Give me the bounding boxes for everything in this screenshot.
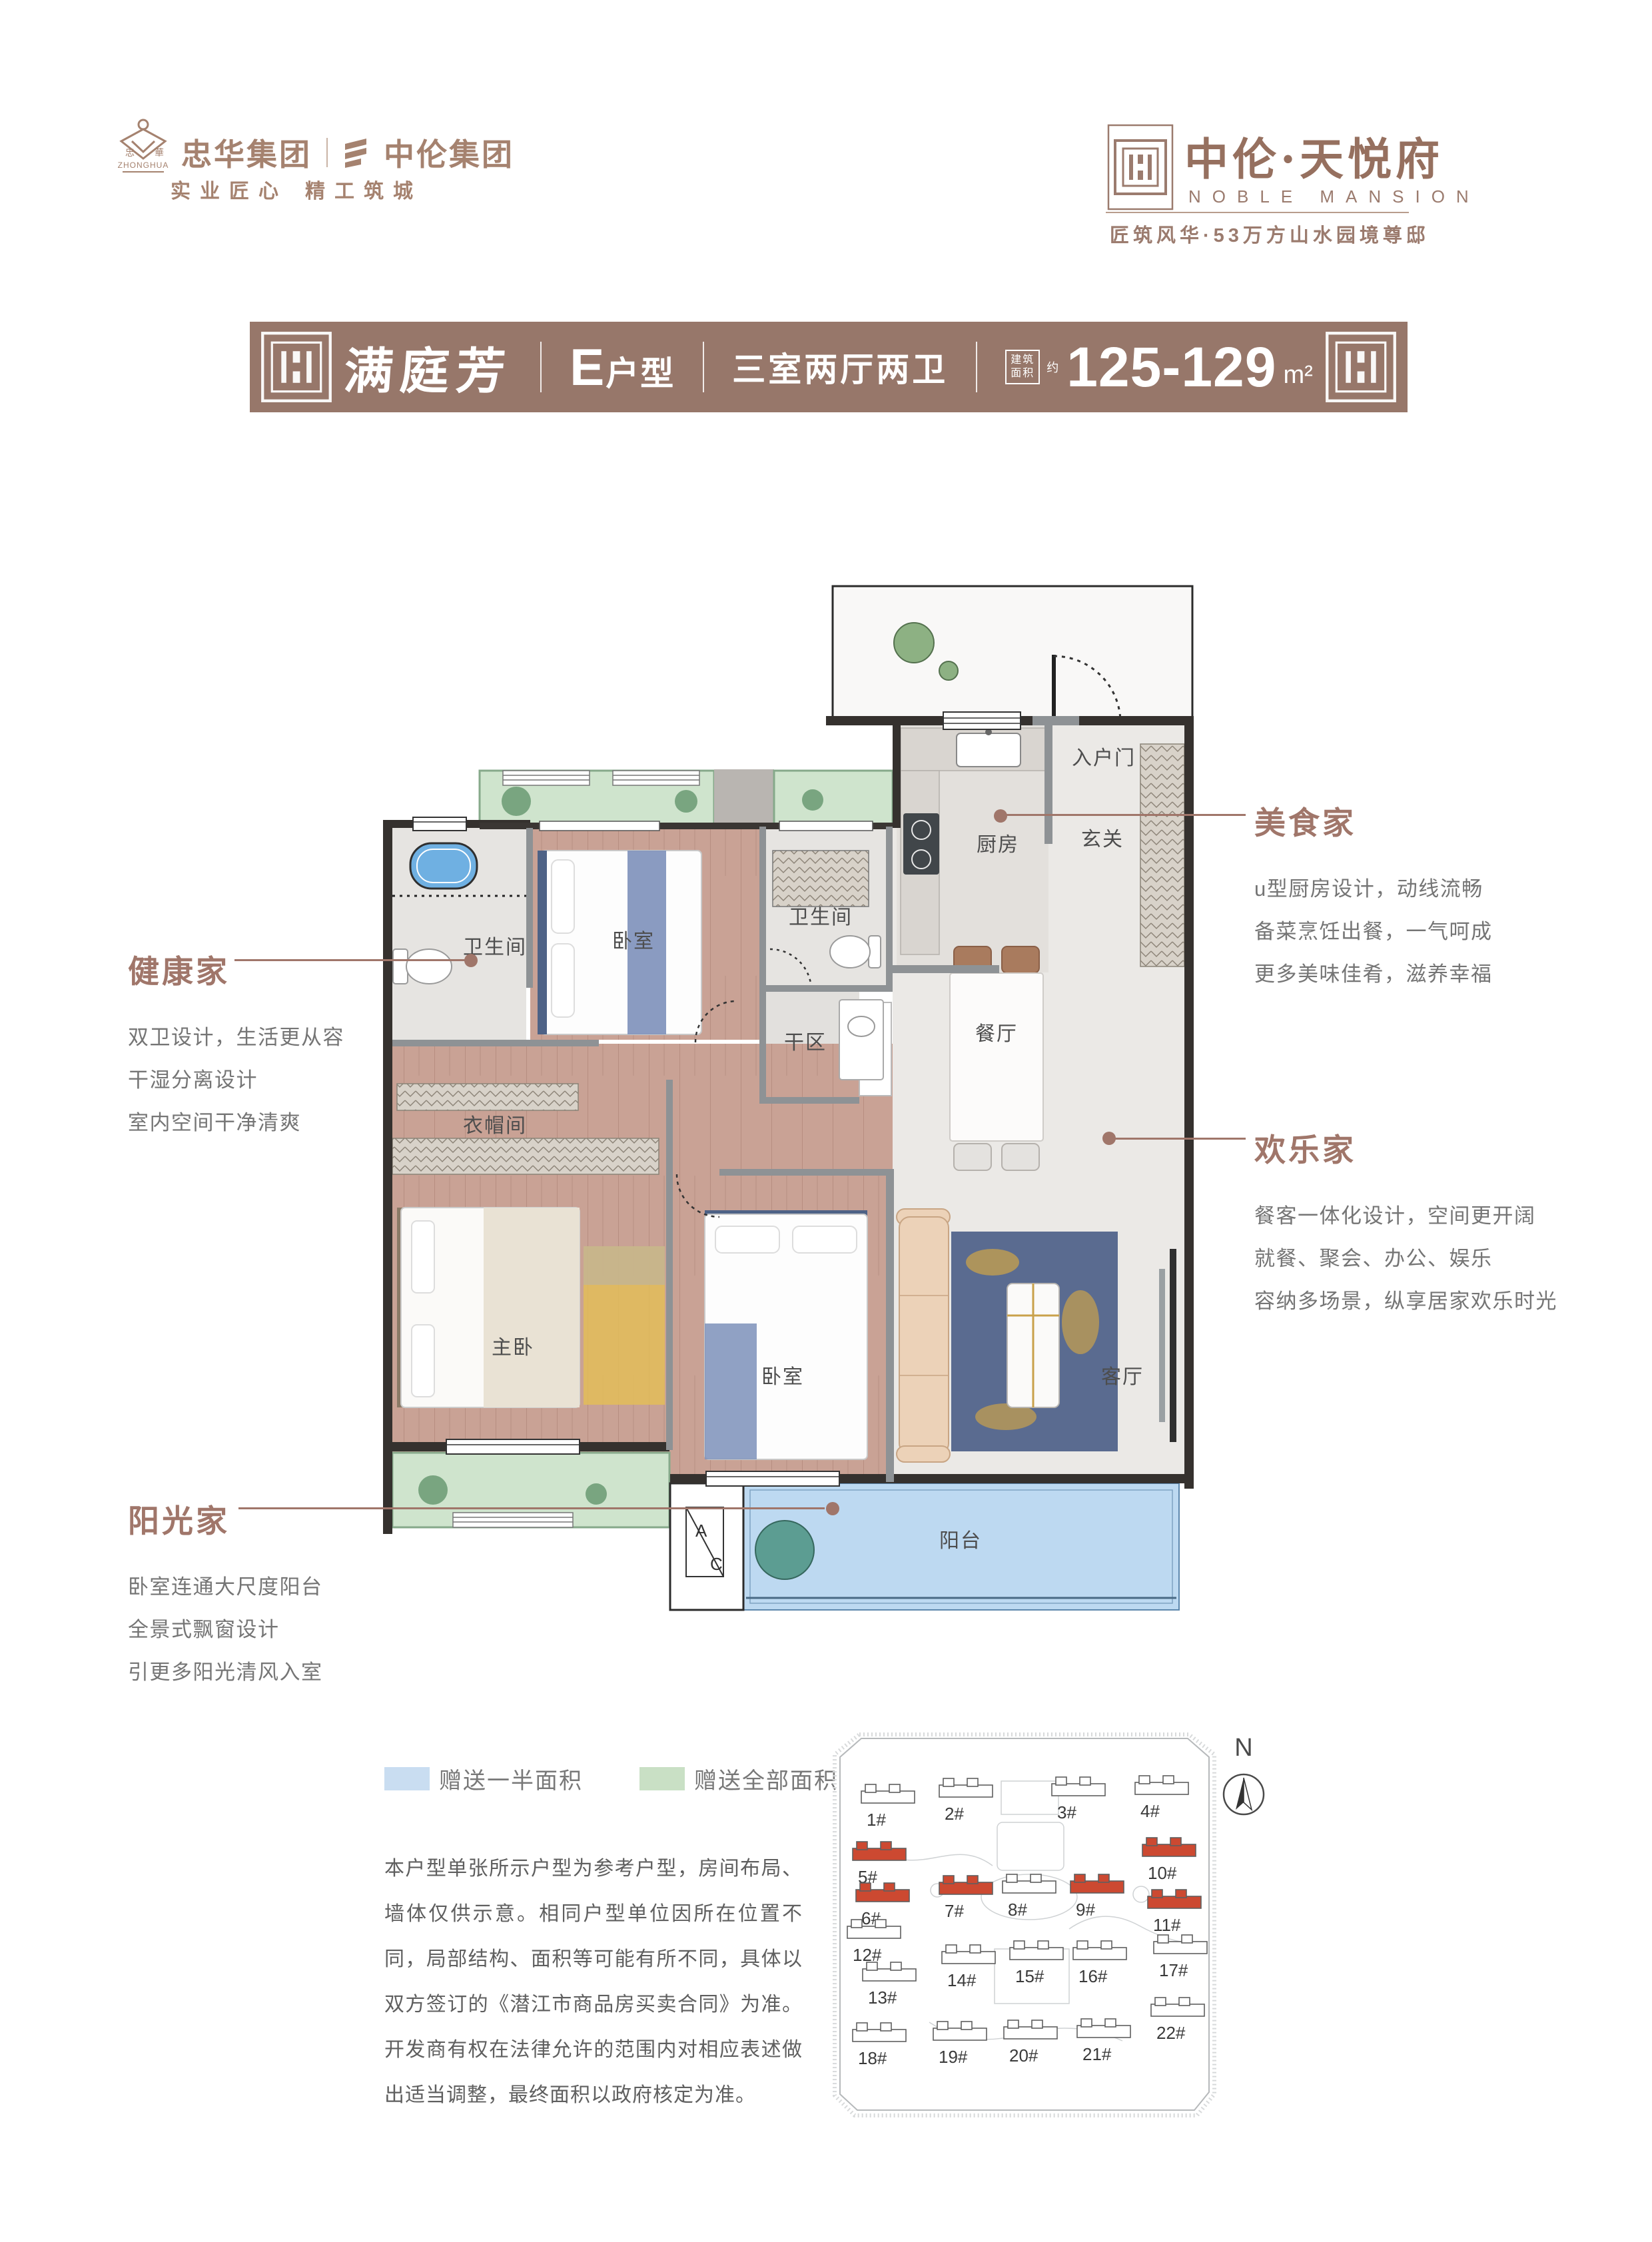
connector-health — [234, 959, 471, 961]
plant-icon — [802, 789, 823, 811]
header-brands: 忠华集团 中伦集团 — [181, 131, 514, 175]
vanity — [839, 1000, 883, 1080]
title-band: 满庭芳 E户型 三室两厅两卫 建筑面积 约 125-129 m² — [250, 322, 1408, 412]
plant-icon — [939, 661, 958, 680]
callout-title: 阳光家 — [128, 1495, 323, 1541]
site-building-label: 4# — [1140, 1801, 1160, 1821]
site-building-label: 10# — [1148, 1863, 1177, 1883]
chair — [1002, 946, 1039, 973]
site-building-label: 19# — [939, 2047, 968, 2067]
wardrobe — [392, 1138, 659, 1174]
svg-text:華: 華 — [155, 147, 164, 158]
foyer-closet — [1140, 744, 1184, 966]
callout-sunshine: 阳光家 卧室连通大尺度阳台 全景式飘窗设计 引更多阳光清风入室 — [128, 1495, 323, 1694]
legend-swatch-full — [639, 1767, 685, 1790]
site-building-label: 13# — [868, 1988, 897, 2008]
project-name: 中伦·天悦府 — [1184, 124, 1444, 188]
connector-joy — [1111, 1138, 1246, 1140]
zhonglun-logo-icon — [342, 137, 369, 168]
band-seal-left-icon — [260, 331, 332, 403]
callout-gourmet: 美食家 u型厨房设计，动线流畅 备菜烹饪出餐，一气呵成 更多美味佳肴，滋养幸福 — [1254, 797, 1493, 996]
callout-health: 健康家 双卫设计，生活更从容 干湿分离设计 室内空间干净清爽 — [128, 946, 344, 1144]
callout-title: 欢乐家 — [1254, 1124, 1557, 1170]
room-label-dining: 餐厅 — [975, 1023, 1018, 1045]
site-building-label: 20# — [1009, 2046, 1038, 2065]
room-label-cloakroom: 衣帽间 — [463, 1115, 527, 1137]
site-building-label: 7# — [945, 1901, 964, 1921]
site-building-label: 16# — [1078, 1966, 1108, 1986]
legend-label-full: 赠送全部面积 — [694, 1762, 838, 1795]
toilet — [393, 949, 408, 984]
legend: 赠送一半面积 赠送全部面积 — [384, 1762, 838, 1795]
area-group: 建筑面积 约 125-129 m² — [1005, 339, 1313, 395]
room-label-master: 主卧 — [492, 1337, 534, 1359]
site-building-label: 22# — [1156, 2023, 1186, 2043]
room-label-living: 客厅 — [1101, 1366, 1144, 1388]
callout-joy: 欢乐家 餐客一体化设计，空间更开阔 就餐、聚会、办公、娱乐 容纳多场景，纵享居家… — [1254, 1124, 1557, 1323]
kitchen-sink — [957, 733, 1021, 767]
connector-dot-sunshine — [826, 1502, 839, 1515]
ac-label-a: A — [695, 1521, 707, 1541]
laundry-counter — [773, 851, 869, 907]
room-label-bath2: 卫生间 — [789, 907, 853, 929]
site-building-label: 9# — [1076, 1900, 1095, 1920]
room-label-bedroom2: 卧室 — [761, 1366, 804, 1388]
plant-icon — [586, 1483, 607, 1505]
legend-swatch-half — [384, 1767, 430, 1790]
header-tagline: 实业匠心精工筑城 — [171, 175, 440, 204]
project-name-en: NOBLE MANSION — [1188, 187, 1480, 207]
unit-type: E户型 — [570, 337, 675, 398]
brand-zhonghua: 忠华集团 — [181, 131, 312, 175]
project-slogan: 匠筑风华·53万方山水园境尊邸 — [1110, 220, 1430, 248]
connector-dot-gourmet — [994, 809, 1007, 823]
room-label-entry: 入户门 — [1072, 747, 1136, 769]
site-building-label: 1# — [867, 1810, 886, 1830]
plant-icon — [502, 787, 531, 816]
room-label-kitchen: 厨房 — [977, 834, 1019, 856]
plant-icon — [675, 790, 697, 813]
entry-platform — [833, 586, 1192, 723]
band-seal-right-icon — [1325, 331, 1397, 403]
brand-divider — [326, 138, 328, 167]
site-building-label: 3# — [1057, 1802, 1076, 1822]
connector-sunshine — [238, 1507, 825, 1509]
site-building-label: 11# — [1153, 1915, 1181, 1935]
callout-title: 美食家 — [1254, 797, 1493, 843]
chair — [1002, 1144, 1039, 1170]
floor-plan: A C — [373, 576, 1199, 1615]
zhonghua-emblem-icon: 忠 華 ZHONGHUA — [117, 117, 169, 175]
svg-text:忠: 忠 — [125, 147, 135, 158]
ac-platform: A C — [670, 1483, 743, 1610]
brand-zhonglun: 中伦集团 — [384, 131, 514, 175]
connector-gourmet — [1001, 814, 1246, 816]
site-building-label: 17# — [1159, 1960, 1188, 1980]
stove — [903, 813, 939, 875]
connector-dot-joy — [1102, 1132, 1116, 1145]
dining-table — [950, 973, 1043, 1141]
site-building-label: 8# — [1008, 1900, 1027, 1920]
noble-mansion-seal-icon — [1107, 124, 1174, 210]
compass-icon: N — [1224, 1734, 1264, 1814]
chair — [954, 1144, 991, 1170]
legend-label-half: 赠送一半面积 — [439, 1762, 583, 1795]
room-label-dry-area: 干区 — [784, 1032, 827, 1054]
disclaimer-text: 本户型单张所示户型为参考户型，房间布局、墙体仅供示意。相同户型单位因所在位置不同… — [384, 1846, 803, 2118]
plan-series-name: 满庭芳 — [342, 332, 514, 403]
callout-title: 健康家 — [128, 946, 344, 992]
header-rule — [1106, 212, 1409, 213]
site-building-label: 14# — [947, 1970, 977, 1990]
compass-north-label: N — [1234, 1734, 1252, 1762]
emblem-sub-label: ZHONGHUA — [118, 161, 169, 170]
ac-label-c: C — [710, 1554, 723, 1574]
plant-icon — [894, 623, 934, 663]
site-building-label: 18# — [858, 2048, 887, 2068]
sofa — [899, 1217, 949, 1454]
room-label-bedroom1: 卧室 — [612, 931, 655, 952]
room-count: 三室两厅两卫 — [732, 343, 948, 391]
wardrobe — [397, 1084, 578, 1110]
bathtub — [410, 843, 477, 889]
connector-dot-health — [464, 954, 478, 967]
plant-icon — [418, 1475, 448, 1505]
room-label-foyer: 玄关 — [1081, 829, 1124, 851]
area-value: 125-129 — [1066, 339, 1276, 395]
site-building-label: 21# — [1082, 2044, 1112, 2064]
site-building-label: 2# — [945, 1804, 964, 1824]
site-building-label: 15# — [1015, 1966, 1044, 1986]
balcony-tree-icon — [755, 1521, 814, 1579]
room-label-balcony: 阳台 — [939, 1530, 982, 1552]
site-plan: 1#2#3#4#5#10#6#7#8#9#11#12#13#14#15#16#1… — [829, 1729, 1269, 2122]
tv — [1170, 1249, 1176, 1442]
